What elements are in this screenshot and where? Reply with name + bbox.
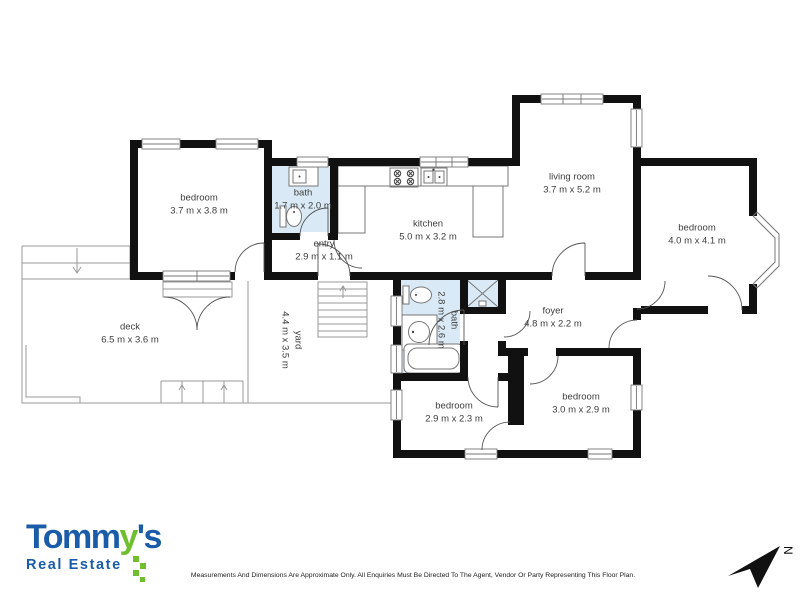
room-label-kitchen: kitchen 5.0 m x 3.2 m [399, 218, 457, 245]
window [297, 157, 328, 167]
room-dims: 2.9 m x 1.1 m [295, 251, 353, 264]
north-label: N [781, 546, 795, 555]
brand-name: Tommy's [26, 519, 161, 556]
room-label-yard: yard 4.4 m x 3.5 m [278, 311, 305, 369]
room-name: bedroom [552, 391, 610, 404]
deck-landing [163, 282, 232, 297]
brand-part-green: y [119, 518, 136, 556]
window [588, 449, 612, 459]
yard-stairs [318, 282, 367, 337]
brand-part-blue-2: 's [137, 518, 161, 556]
window [631, 109, 642, 147]
room-dims: 3.7 m x 5.2 m [543, 184, 601, 197]
logo-pixel [133, 570, 139, 576]
window [541, 94, 603, 104]
bay-window [753, 212, 779, 288]
room-name: bath [447, 291, 460, 349]
floorplan-drawing [0, 0, 800, 600]
room-name: kitchen [399, 218, 457, 231]
room-name: foyer [524, 305, 582, 318]
room-label-bath-middle: bath 2.8 m x 2.6 m [434, 291, 461, 349]
room-label-bedroom-bottom-left: bedroom 2.9 m x 2.3 m [425, 400, 483, 427]
room-label-entry: entry 2.9 m x 1.1 m [295, 238, 353, 265]
room-name: yard [291, 311, 304, 369]
room-label-bedroom-top-left: bedroom 3.7 m x 3.8 m [170, 192, 228, 219]
room-dims: 1.7 m x 2.0 m [274, 200, 332, 213]
room-dims: 3.7 m x 3.8 m [170, 205, 228, 218]
room-label-foyer: foyer 4.8 m x 2.2 m [524, 305, 582, 332]
room-dims: 2.8 m x 2.6 m [434, 291, 447, 349]
logo-pixel [133, 556, 139, 562]
room-label-bedroom-bottom-right: bedroom 3.0 m x 2.9 m [552, 391, 610, 418]
room-label-living-room: living room 3.7 m x 5.2 m [543, 171, 601, 198]
room-dims: 3.0 m x 2.9 m [552, 404, 610, 417]
room-name: deck [101, 321, 159, 334]
room-name: bedroom [668, 222, 726, 235]
room-dims: 6.5 m x 3.6 m [101, 334, 159, 347]
window [465, 449, 497, 459]
kitchen-sink-icon [421, 168, 447, 186]
room-dims: 4.8 m x 2.2 m [524, 318, 582, 331]
window [631, 385, 642, 410]
window [420, 157, 468, 167]
logo-pixel [140, 577, 145, 582]
room-name: entry [295, 238, 353, 251]
room-name: bedroom [425, 400, 483, 413]
window [391, 296, 402, 326]
window [216, 139, 258, 149]
room-dims: 4.4 m x 3.5 m [278, 311, 291, 369]
room-label-bedroom-right: bedroom 4.0 m x 4.1 m [668, 222, 726, 249]
north-arrow-dart [728, 546, 780, 588]
north-arrow: N [722, 538, 800, 596]
room-label-bath-top: bath 1.7 m x 2.0 m [274, 187, 332, 214]
room-name: living room [543, 171, 601, 184]
room-dims: 5.0 m x 3.2 m [399, 231, 457, 244]
brand-part-blue: Tomm [26, 518, 119, 556]
window [391, 390, 402, 420]
room-label-deck: deck 6.5 m x 3.6 m [101, 321, 159, 348]
room-name: bedroom [170, 192, 228, 205]
disclaimer-text: Measurements And Dimensions Are Approxim… [191, 572, 635, 579]
toilet-icon [403, 286, 409, 304]
room-dims: 2.9 m x 2.3 m [425, 413, 483, 426]
window [142, 139, 180, 149]
room-dims: 4.0 m x 4.1 m [668, 235, 726, 248]
room-name: bath [274, 187, 332, 200]
window [391, 345, 402, 373]
logo-pixel [140, 563, 146, 569]
sliding-door-window [163, 271, 230, 281]
